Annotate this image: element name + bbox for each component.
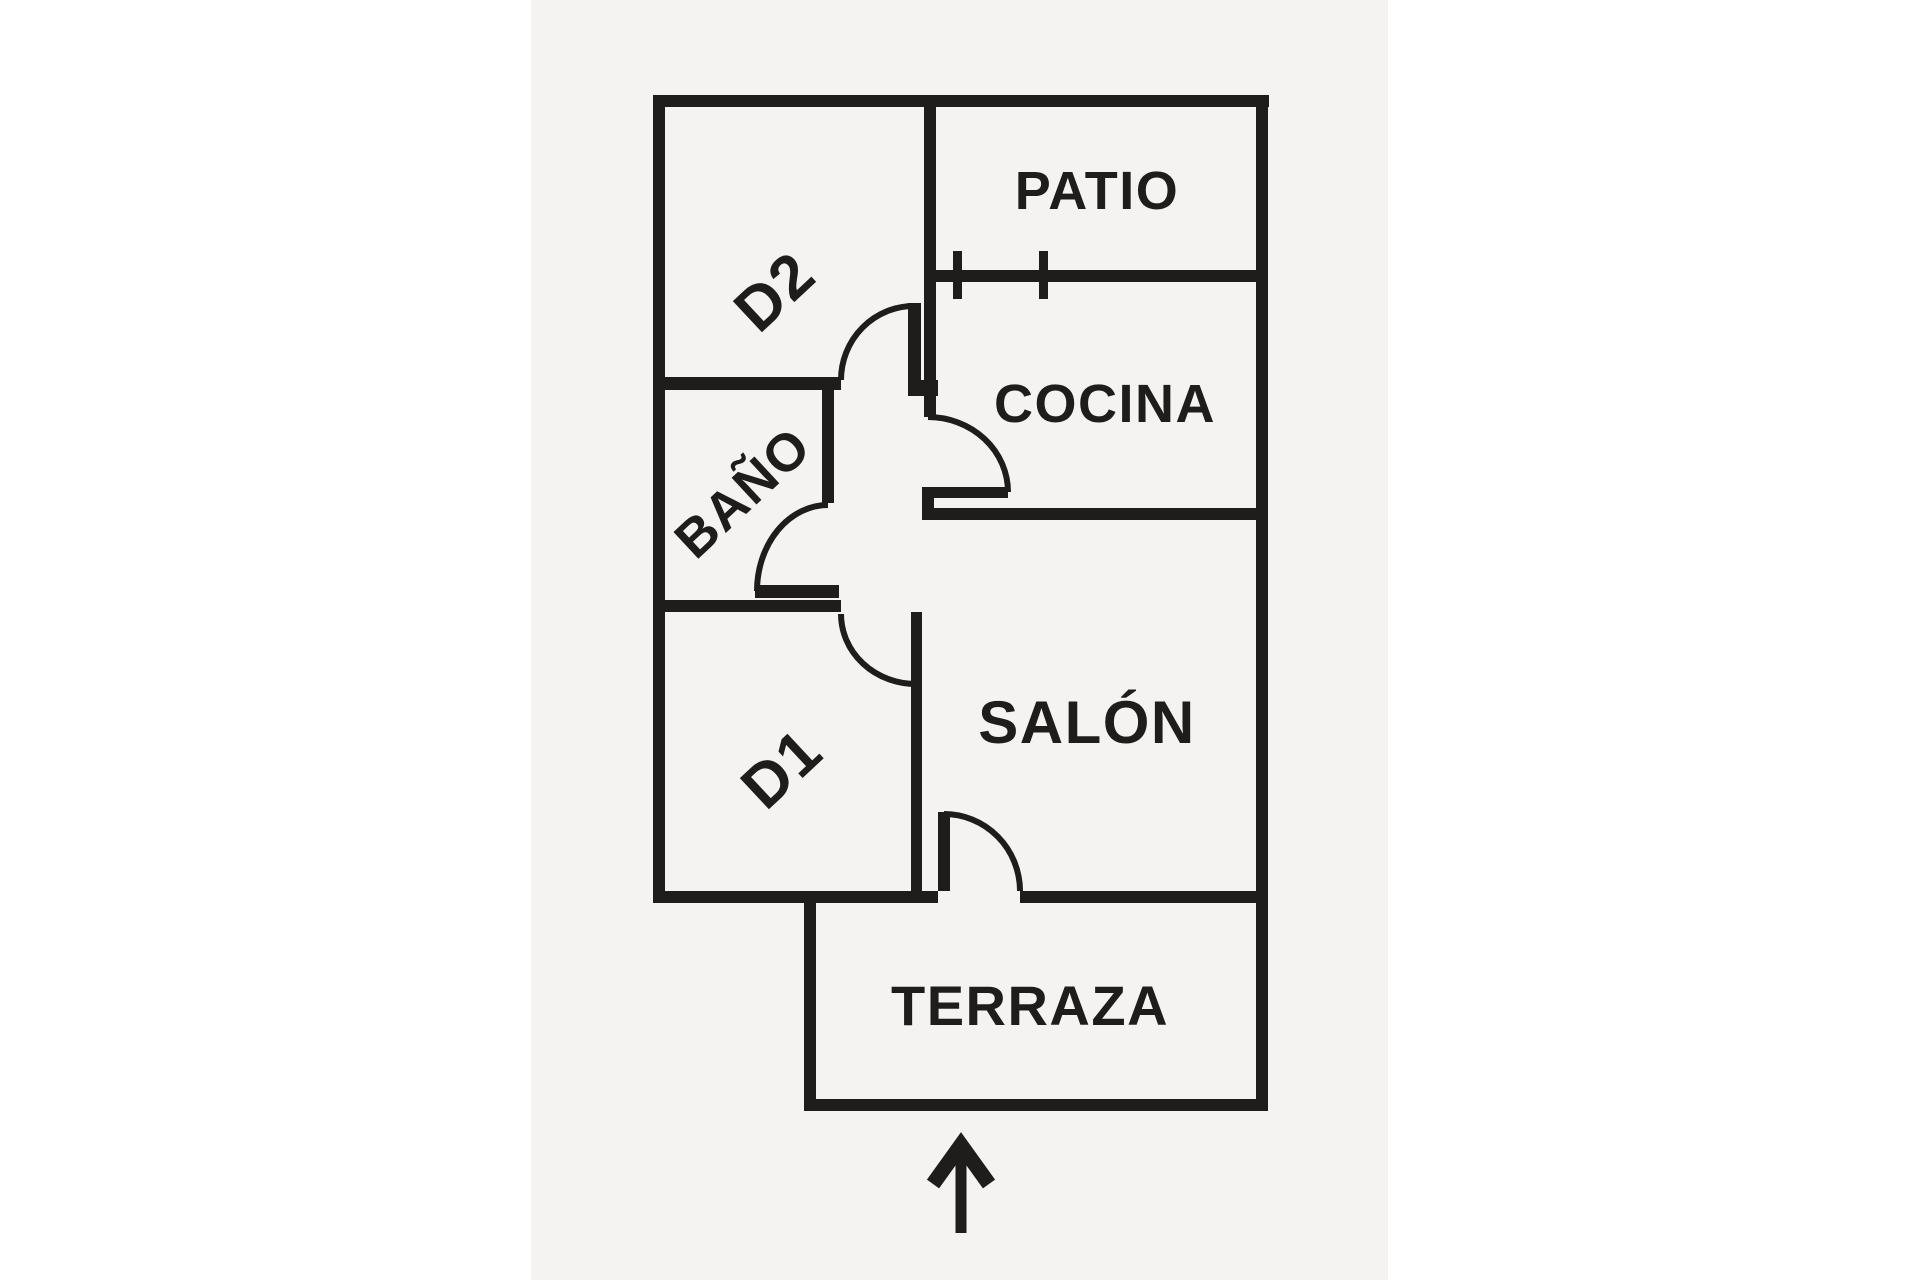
floor-plan-image: PATIO COCINA SALÓN TERRAZA D2 BAÑO D1 xyxy=(0,0,1920,1280)
wall-bottom-left-segment xyxy=(653,891,938,903)
label-salon: SALÓN xyxy=(978,689,1196,756)
bano-door-leaf xyxy=(755,585,839,598)
wall-bano-right xyxy=(822,377,834,503)
floor-plan-page: PATIO COCINA SALÓN TERRAZA D2 BAÑO D1 xyxy=(0,0,1920,1280)
cocina-door-leaf xyxy=(922,487,1008,498)
label-terraza: TERRAZA xyxy=(891,974,1169,1037)
salon-terraza-door-leaf xyxy=(938,812,950,891)
wall-bottom-right-segment xyxy=(1020,891,1268,903)
wall-bano-bottom xyxy=(653,600,841,612)
wall-d2-bottom xyxy=(653,377,841,390)
wall-outer-top xyxy=(653,95,1269,107)
label-cocina: COCINA xyxy=(994,374,1216,434)
d2-door-leaf xyxy=(908,303,921,383)
wall-patio-cocina-divider xyxy=(930,270,1268,282)
wall-cocina-bottom xyxy=(922,508,1268,520)
window-tick-right xyxy=(1039,251,1048,299)
wall-patio-left xyxy=(924,95,936,417)
wall-outer-left xyxy=(653,95,665,903)
label-patio: PATIO xyxy=(1015,161,1180,221)
wall-terraza-bottom xyxy=(804,1099,1268,1111)
wall-terraza-left xyxy=(804,891,816,1111)
wall-outer-right xyxy=(1256,95,1268,1111)
wall-salon-d1-divider xyxy=(911,612,922,891)
window-tick-left xyxy=(953,251,962,299)
